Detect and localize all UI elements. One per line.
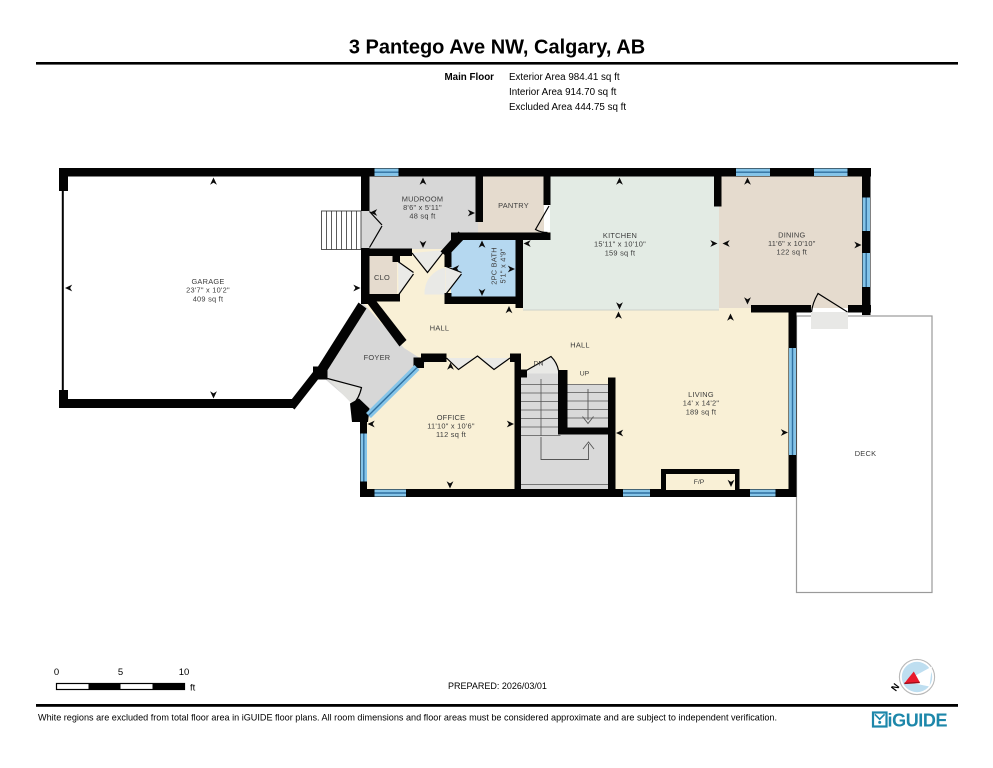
svg-text:DN: DN (534, 360, 544, 367)
svg-text:HALL: HALL (570, 341, 590, 350)
svg-text:HALL: HALL (430, 323, 450, 332)
svg-text:F/P: F/P (694, 479, 705, 486)
svg-text:DECK: DECK (855, 449, 877, 458)
svg-text:0: 0 (54, 667, 59, 678)
svg-text:ft: ft (190, 683, 196, 694)
svg-text:Main Floor: Main Floor (444, 72, 494, 83)
svg-text:122 sq ft: 122 sq ft (776, 248, 807, 257)
svg-text:PREPARED: 2026/03/01: PREPARED: 2026/03/01 (448, 681, 547, 691)
svg-text:LIVING: LIVING (688, 390, 714, 399)
svg-text:5: 5 (118, 667, 123, 678)
svg-text:10: 10 (179, 667, 190, 678)
svg-text:iGUIDE: iGUIDE (888, 711, 948, 731)
svg-text:UP: UP (580, 370, 590, 377)
svg-text:PANTRY: PANTRY (498, 201, 529, 210)
svg-text:Interior Area 914.70 sq ft: Interior Area 914.70 sq ft (509, 87, 617, 98)
svg-text:FOYER: FOYER (364, 353, 391, 362)
svg-text:2PC BATH: 2PC BATH (489, 247, 498, 285)
svg-text:8'6" x 5'11": 8'6" x 5'11" (403, 203, 442, 212)
svg-text:409 sq ft: 409 sq ft (193, 294, 224, 303)
svg-text:CLO: CLO (374, 273, 390, 282)
svg-text:189 sq ft: 189 sq ft (686, 407, 717, 416)
svg-text:5'1" x 4'9": 5'1" x 4'9" (498, 248, 507, 283)
svg-text:112 sq ft: 112 sq ft (436, 430, 466, 439)
svg-text:159 sq ft: 159 sq ft (605, 248, 636, 257)
svg-text:Exterior Area 984.41 sq ft: Exterior Area 984.41 sq ft (509, 72, 620, 83)
svg-text:48 sq ft: 48 sq ft (409, 212, 435, 221)
svg-text:GARAGE: GARAGE (191, 277, 224, 286)
svg-text:14' x 14'2": 14' x 14'2" (683, 399, 720, 408)
svg-text:White regions are excluded fro: White regions are excluded from total fl… (38, 713, 777, 723)
svg-text:KITCHEN: KITCHEN (603, 231, 637, 240)
svg-text:Excluded Area 444.75 sq ft: Excluded Area 444.75 sq ft (509, 102, 626, 113)
svg-text:MUDROOM: MUDROOM (402, 194, 444, 203)
svg-text:23'7" x 10'2": 23'7" x 10'2" (186, 286, 230, 295)
svg-text:3 Pantego Ave NW, Calgary, AB: 3 Pantego Ave NW, Calgary, AB (349, 37, 645, 59)
svg-text:15'11" x 10'10": 15'11" x 10'10" (594, 240, 646, 249)
